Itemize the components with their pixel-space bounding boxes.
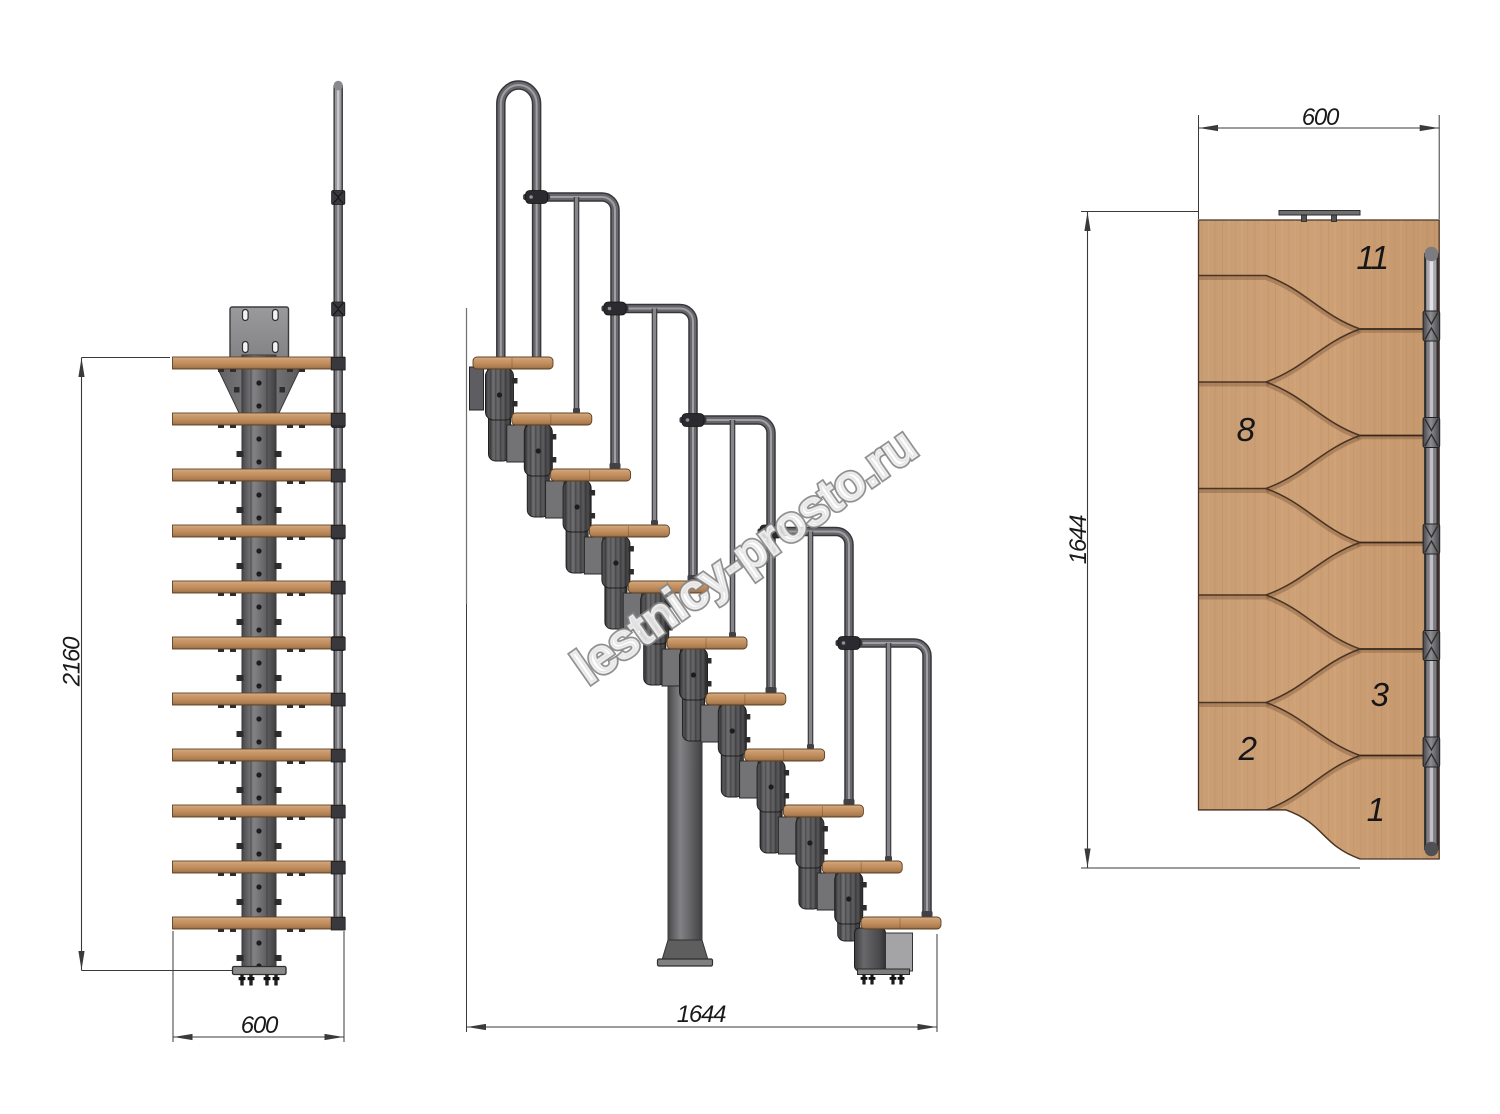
svg-text:2: 2 bbox=[1238, 730, 1257, 767]
svg-text:3: 3 bbox=[1371, 676, 1390, 713]
svg-text:1644: 1644 bbox=[677, 1001, 726, 1028]
svg-text:1: 1 bbox=[1367, 791, 1384, 828]
svg-text:8: 8 bbox=[1237, 411, 1256, 448]
svg-text:600: 600 bbox=[1302, 104, 1340, 131]
svg-text:600: 600 bbox=[241, 1012, 279, 1039]
svg-text:1644: 1644 bbox=[1065, 515, 1092, 564]
svg-text:2160: 2160 bbox=[59, 636, 86, 687]
svg-text:11: 11 bbox=[1356, 239, 1387, 276]
